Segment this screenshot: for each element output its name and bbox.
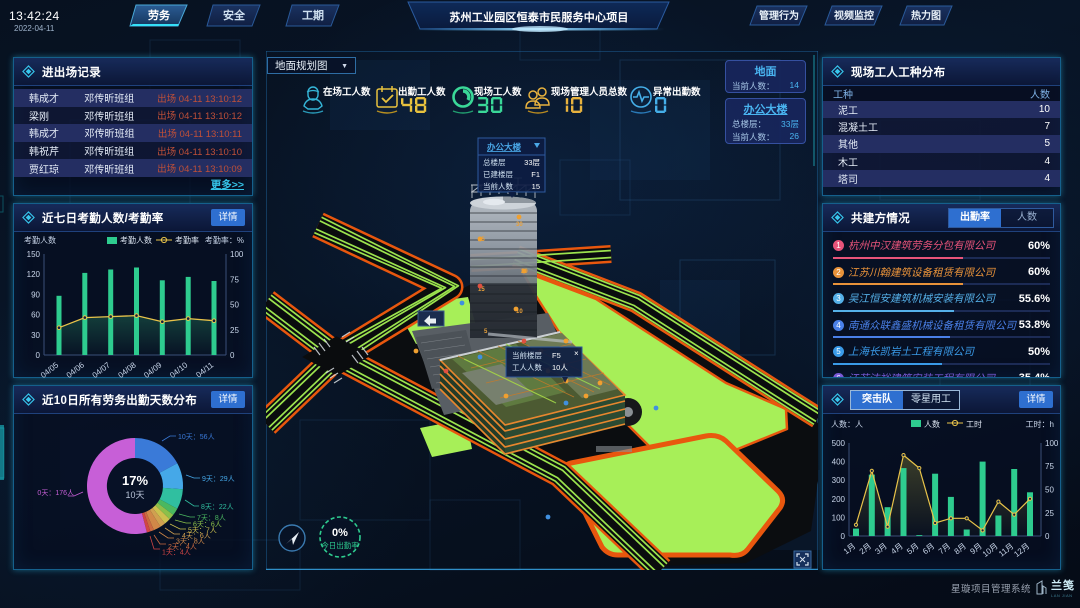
svg-text:1天：4人: 1天：4人	[162, 549, 191, 557]
svg-text:15: 15	[532, 182, 540, 191]
svg-text:工时：h: 工时：h	[1026, 419, 1054, 429]
svg-text:1月: 1月	[842, 541, 857, 556]
svg-text:5月: 5月	[905, 541, 920, 556]
svg-text:当前人数: 当前人数	[483, 181, 513, 191]
svg-text:30: 30	[516, 222, 523, 228]
svg-text:热力图: 热力图	[911, 9, 941, 22]
svg-text:苏州工业园区恒泰市民服务中心项目: 苏州工业园区恒泰市民服务中心项目	[449, 10, 628, 24]
svg-text:50: 50	[230, 301, 239, 310]
svg-text:11月: 11月	[997, 541, 1015, 558]
svg-text:考勤率：%: 考勤率：%	[205, 235, 244, 245]
svg-text:工期: 工期	[302, 8, 324, 22]
svg-text:25: 25	[1045, 509, 1054, 518]
svg-text:6月: 6月	[921, 541, 936, 556]
svg-text:10人: 10人	[552, 363, 568, 372]
svg-text:100: 100	[1045, 439, 1059, 448]
svg-text:3月: 3月	[873, 541, 888, 556]
svg-text:工人人数: 工人人数	[512, 362, 542, 372]
svg-text:当前楼层: 当前楼层	[512, 350, 542, 360]
svg-text:视频监控: 视频监控	[834, 9, 874, 22]
svg-text:人数: 人数	[924, 419, 940, 429]
svg-text:8月: 8月	[953, 541, 968, 556]
svg-text:75: 75	[230, 275, 239, 284]
svg-text:12月: 12月	[1012, 541, 1031, 559]
svg-text:F1: F1	[531, 170, 540, 179]
svg-text:已建楼层: 已建楼层	[483, 169, 513, 179]
svg-text:04/06: 04/06	[65, 360, 87, 378]
svg-text:04/10: 04/10	[168, 360, 190, 378]
svg-text:0: 0	[1045, 532, 1050, 541]
svg-text:8天：22人: 8天：22人	[201, 503, 234, 511]
svg-text:安全: 安全	[223, 8, 246, 22]
svg-text:10天: 10天	[125, 490, 144, 500]
svg-text:100: 100	[832, 513, 846, 522]
svg-text:劳务: 劳务	[148, 8, 171, 22]
svg-text:7月: 7月	[937, 541, 952, 556]
svg-text:考勤率: 考勤率	[175, 235, 199, 245]
svg-text:办公大楼: 办公大楼	[487, 142, 522, 152]
svg-text:总楼层: 总楼层	[483, 157, 506, 167]
svg-text:人数：人: 人数：人	[831, 419, 863, 429]
svg-text:×: ×	[574, 349, 579, 358]
svg-text:10天：56人: 10天：56人	[178, 433, 215, 441]
svg-text:200: 200	[832, 495, 846, 504]
svg-text:考勤人数: 考勤人数	[120, 235, 152, 245]
svg-text:25: 25	[230, 326, 239, 335]
svg-text:150: 150	[27, 250, 41, 259]
svg-text:0: 0	[230, 351, 235, 360]
svg-text:考勤人数: 考勤人数	[24, 235, 56, 245]
svg-text:0天：176人: 0天：176人	[37, 489, 74, 497]
svg-text:30: 30	[31, 331, 40, 340]
svg-text:0: 0	[841, 532, 846, 541]
svg-text:90: 90	[31, 290, 40, 299]
svg-text:04/05: 04/05	[39, 360, 61, 378]
svg-text:管理行为: 管理行为	[759, 9, 799, 22]
svg-text:10月: 10月	[981, 541, 1000, 559]
svg-text:04/11: 04/11	[194, 360, 215, 378]
svg-text:04/09: 04/09	[142, 360, 164, 378]
svg-text:75: 75	[1045, 462, 1054, 471]
svg-text:2月: 2月	[858, 541, 873, 556]
svg-text:04/07: 04/07	[91, 360, 113, 378]
svg-text:4月: 4月	[889, 541, 904, 556]
svg-text:60: 60	[31, 311, 40, 320]
svg-text:300: 300	[832, 476, 846, 485]
svg-text:04/08: 04/08	[116, 360, 138, 378]
svg-text:50: 50	[1045, 486, 1054, 495]
svg-text:500: 500	[832, 439, 846, 448]
svg-text:工时: 工时	[966, 419, 982, 429]
svg-text:100: 100	[230, 250, 244, 259]
svg-text:33层: 33层	[524, 158, 540, 167]
svg-text:0: 0	[36, 351, 41, 360]
svg-text:F5: F5	[552, 351, 561, 360]
svg-text:17%: 17%	[122, 473, 148, 488]
svg-text:120: 120	[27, 270, 41, 279]
svg-text:今日出勤率: 今日出勤率	[321, 540, 359, 550]
svg-text:9天：29人: 9天：29人	[202, 475, 235, 483]
svg-text:0%: 0%	[332, 527, 348, 539]
svg-text:400: 400	[832, 458, 846, 467]
